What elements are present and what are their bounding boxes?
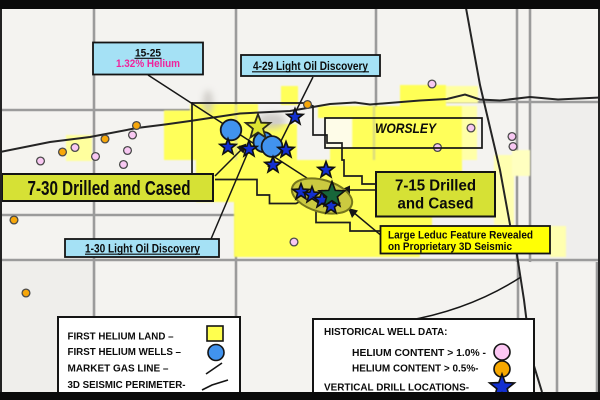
svg-text:FIRST HELIUM LAND –: FIRST HELIUM LAND – xyxy=(68,331,174,343)
svg-text:3D SEISMIC PERIMETER-: 3D SEISMIC PERIMETER- xyxy=(68,379,186,391)
svg-text:on Proprietary 3D Seismic: on Proprietary 3D Seismic xyxy=(388,241,512,253)
svg-text:4-29 Light Oil Discovery: 4-29 Light Oil Discovery xyxy=(253,61,369,73)
svg-text:MARKET GAS LINE –: MARKET GAS LINE – xyxy=(68,363,169,375)
svg-text:HELIUM CONTENT > 0.5%-: HELIUM CONTENT > 0.5%- xyxy=(352,363,479,375)
svg-text:HELIUM CONTENT > 1.0% -: HELIUM CONTENT > 1.0% - xyxy=(352,347,486,359)
svg-text:FIRST HELIUM WELLS –: FIRST HELIUM WELLS – xyxy=(68,346,182,358)
svg-text:HISTORICAL WELL DATA:: HISTORICAL WELL DATA: xyxy=(324,326,448,338)
svg-text:7-30 Drilled and Cased: 7-30 Drilled and Cased xyxy=(28,178,191,200)
svg-text:7-15 Drilled: 7-15 Drilled xyxy=(395,178,476,195)
svg-text:Large Leduc Feature Revealed: Large Leduc Feature Revealed xyxy=(388,229,533,241)
svg-text:1.32% Helium: 1.32% Helium xyxy=(116,58,180,70)
svg-text:and Cased: and Cased xyxy=(398,196,474,213)
svg-text:VERTICAL DRILL LOCATIONS-: VERTICAL DRILL LOCATIONS- xyxy=(324,382,469,394)
svg-text:WORSLEY: WORSLEY xyxy=(375,120,437,136)
